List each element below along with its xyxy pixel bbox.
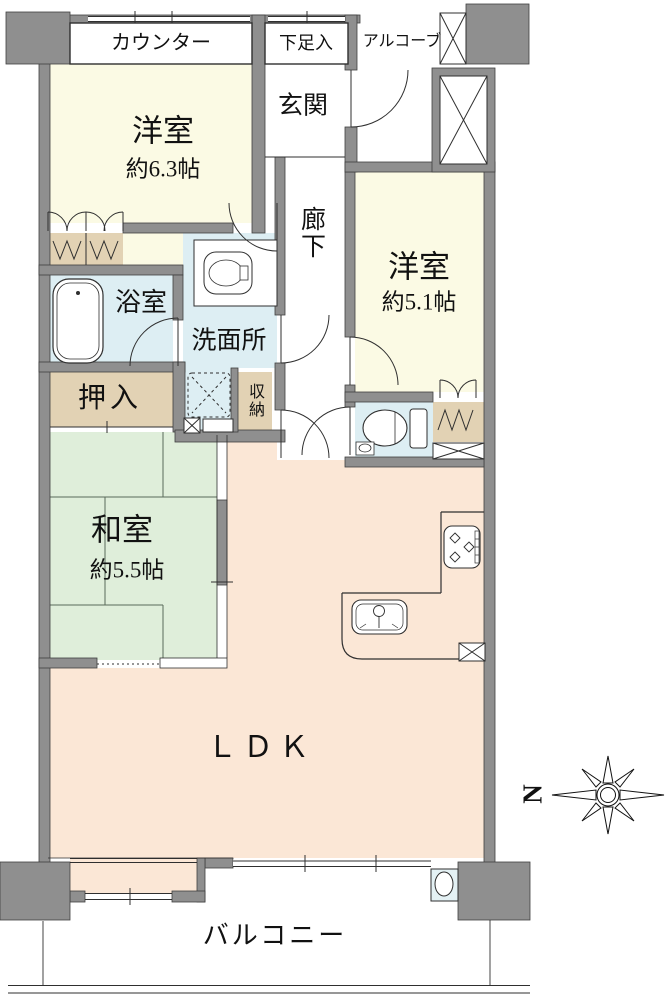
- floor-plan: カウンター 下足入 アルコーブ 玄関 廊下 洋室 約6.3帖 洋室 約5.1帖 …: [0, 0, 672, 1000]
- bathtub-icon: [53, 279, 103, 363]
- floor-plan-drawing: [0, 0, 672, 1000]
- label-balcony: バルコニー: [203, 923, 347, 949]
- label-western-room-small-area: 約5.1帖: [382, 291, 457, 314]
- label-japanese-room-area: 約5.5帖: [90, 559, 165, 582]
- slop-sink-icon: [431, 869, 458, 901]
- label-corridor: 廊下: [299, 206, 324, 260]
- label-ldk: ＬＤＫ: [207, 733, 315, 763]
- label-alcove: アルコーブ: [363, 34, 442, 50]
- label-washroom: 洗面所: [191, 329, 266, 354]
- label-entrance: 玄関: [278, 94, 328, 119]
- label-bathroom: 浴室: [115, 290, 167, 316]
- label-western-room-large: 洋室: [132, 116, 194, 147]
- label-shoe-storage: 下足入: [279, 34, 333, 52]
- label-western-room-large-area: 約6.3帖: [126, 158, 201, 181]
- label-counter: カウンター: [111, 33, 211, 53]
- kitchen-sink-icon: [352, 600, 407, 634]
- stove-icon: [444, 526, 480, 568]
- compass-rose-icon: [552, 756, 664, 834]
- label-storage: 収納: [246, 383, 262, 419]
- label-compass-north: N: [520, 784, 547, 804]
- label-western-room-small: 洋室: [388, 252, 450, 283]
- label-futon-closet: 押入: [78, 385, 142, 413]
- label-japanese-room: 和室: [91, 515, 153, 546]
